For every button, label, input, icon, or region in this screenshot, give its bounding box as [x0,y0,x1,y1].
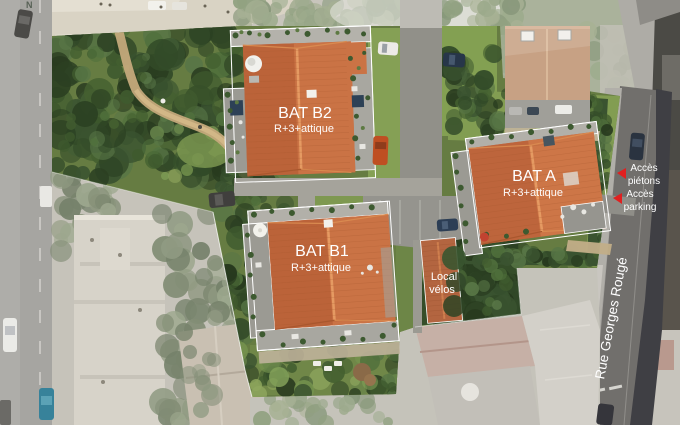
svg-text:BAT B2: BAT B2 [278,105,332,122]
svg-text:R+3+attique: R+3+attique [291,262,351,274]
svg-text:Local: Local [431,271,457,283]
svg-text:R+3+attique: R+3+attique [503,187,563,199]
svg-text:R+3+attique: R+3+attique [274,123,334,135]
svg-text:parking: parking [624,202,657,213]
svg-text:N: N [26,0,33,10]
svg-text:vélos: vélos [429,284,455,296]
svg-text:piétons: piétons [628,176,660,187]
svg-text:Accès: Accès [630,163,657,174]
svg-text:BAT A: BAT A [512,168,556,185]
svg-text:BAT B1: BAT B1 [295,243,349,260]
svg-text:Accès: Accès [626,189,653,200]
